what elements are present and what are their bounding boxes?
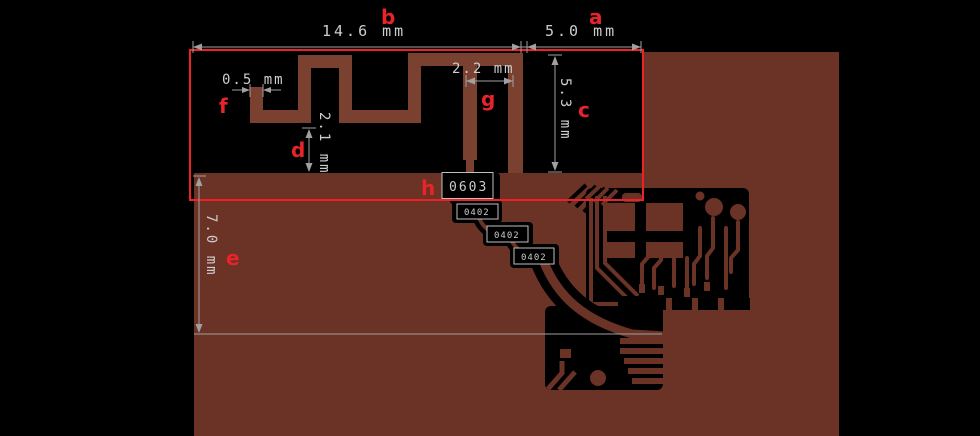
label-h: h [421, 176, 435, 200]
routing-cluster-upper [568, 185, 750, 312]
pcb-layout-svg: 0603 0402 0402 0402 14.6 mm 5.0 mm 0.5 m… [0, 0, 980, 436]
label-f: f [219, 94, 228, 118]
dim-d-value: 2.1 mm [316, 112, 332, 175]
label-d: d [291, 138, 305, 162]
pcb-antenna-layout-screenshot: 0603 0402 0402 0402 14.6 mm 5.0 mm 0.5 m… [0, 0, 980, 436]
dim-e-value: 7.0 mm [203, 214, 219, 277]
via-pad-large-1 [705, 198, 723, 216]
via-pad-small [696, 192, 705, 201]
via-pad-lower [590, 370, 606, 386]
dim-c-value: 5.3 mm [557, 78, 573, 141]
component-0402-mid: 0402 [487, 226, 528, 242]
cross-pad-horizontal-gap [607, 231, 683, 242]
cross-pad-vertical-gap [635, 203, 646, 258]
component-0402-bottom: 0402 [514, 248, 554, 264]
bottom-band-gap-2 [666, 298, 672, 312]
label-c: c [578, 98, 590, 122]
component-0603-label: 0603 [449, 180, 488, 195]
small-pad-lower [560, 349, 571, 358]
bottom-band-gap-4 [718, 298, 724, 312]
component-0402-top-label: 0402 [464, 208, 490, 218]
stub-tip-2 [658, 286, 664, 295]
label-a: a [589, 5, 603, 29]
label-b: b [381, 5, 395, 29]
dim-g-value: 2.2 mm [452, 61, 515, 77]
cluster-lower-bridge [618, 296, 663, 310]
via-pad-large-2 [730, 204, 746, 220]
label-e: e [226, 246, 240, 270]
dim-a-value: 5.0 mm [545, 22, 617, 40]
bottom-band-gap-3 [692, 298, 698, 312]
component-0402-mid-label: 0402 [494, 231, 520, 241]
stub-tip-1 [639, 284, 645, 293]
dim-f-value: 0.5 mm [222, 72, 285, 88]
stub-tip-4 [704, 282, 710, 291]
component-0402-bottom-label: 0402 [521, 253, 547, 263]
stub-tip-3 [684, 288, 690, 297]
component-0402-top: 0402 [457, 204, 498, 219]
label-g: g [481, 87, 495, 111]
component-0603: 0603 [442, 173, 493, 199]
